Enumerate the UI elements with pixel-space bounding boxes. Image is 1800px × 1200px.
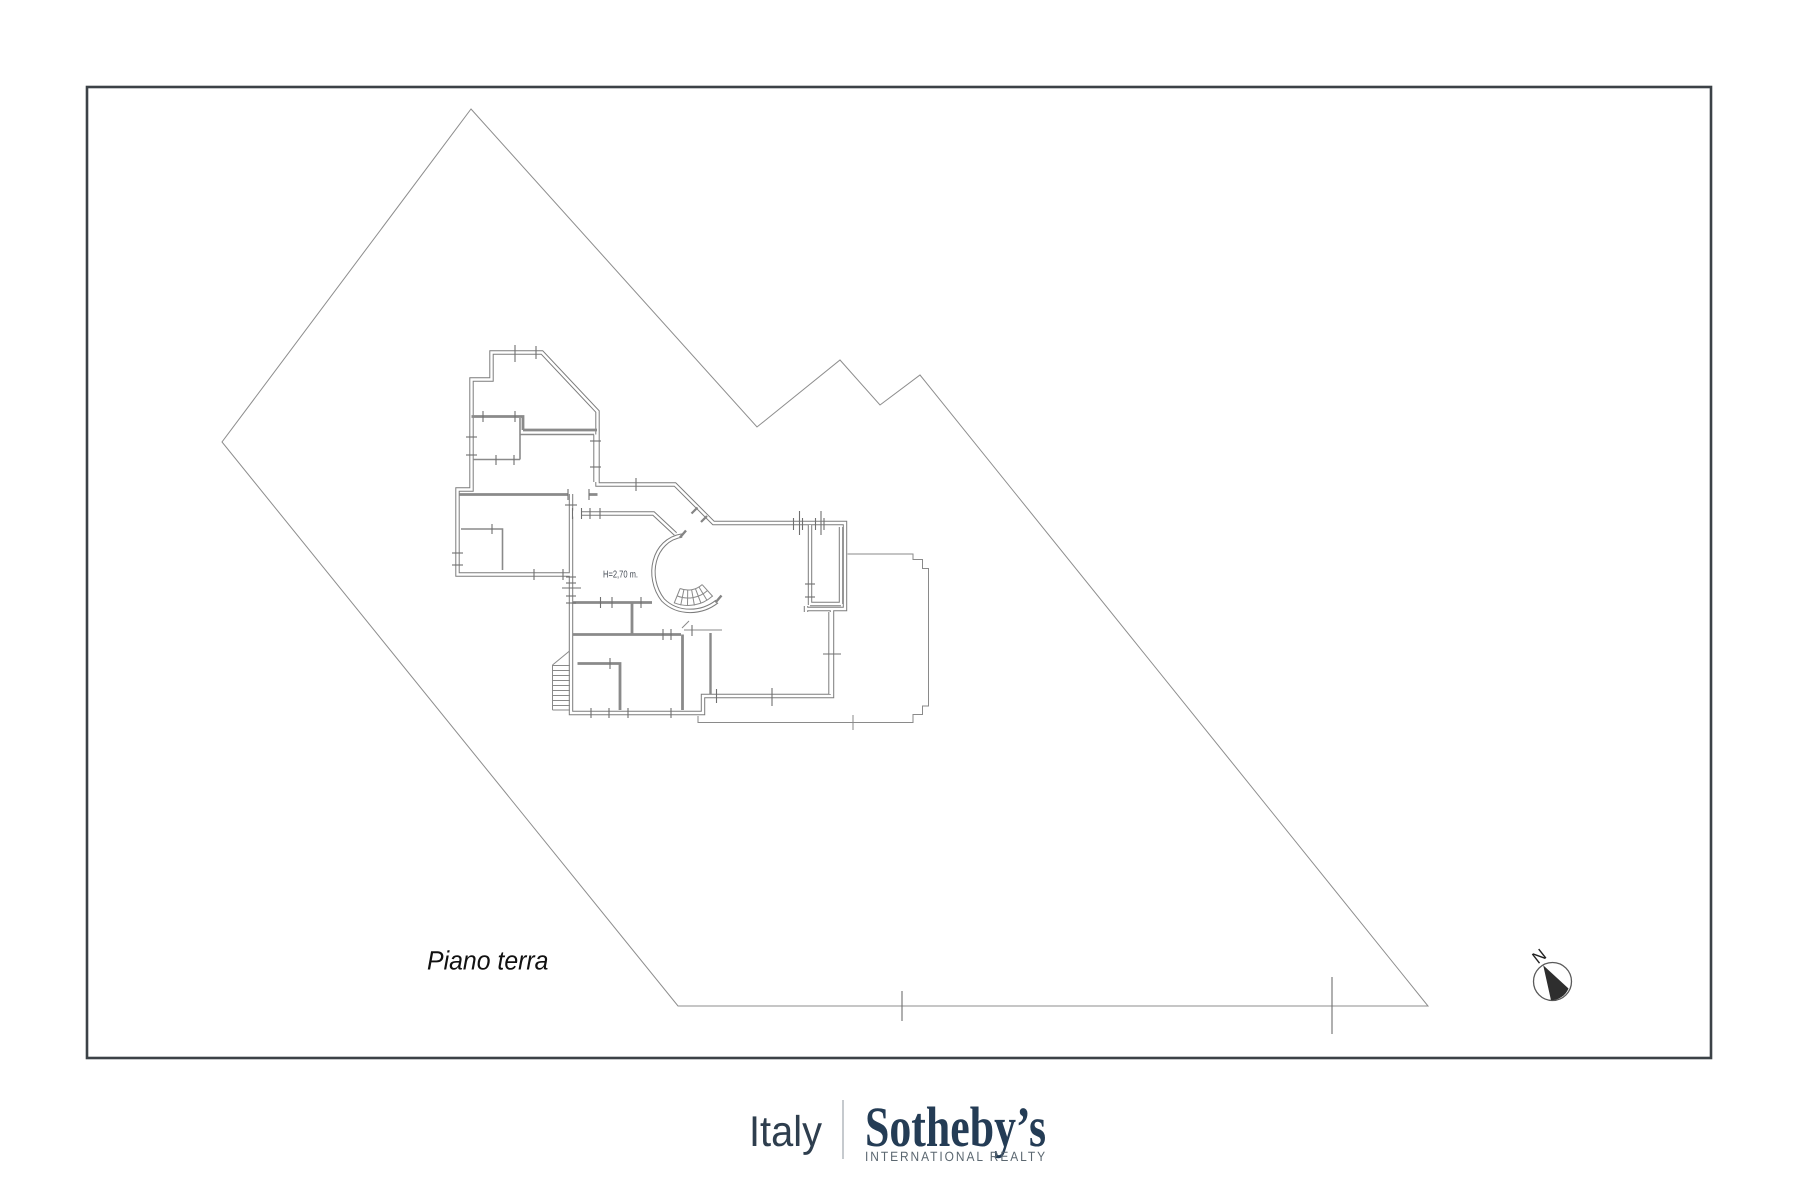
svg-text:Piano terra: Piano terra (427, 946, 549, 976)
svg-text:H=2,70 m.: H=2,70 m. (603, 570, 638, 581)
svg-text:Italy: Italy (749, 1108, 822, 1156)
svg-text:INTERNATIONAL REALTY: INTERNATIONAL REALTY (865, 1149, 1047, 1164)
